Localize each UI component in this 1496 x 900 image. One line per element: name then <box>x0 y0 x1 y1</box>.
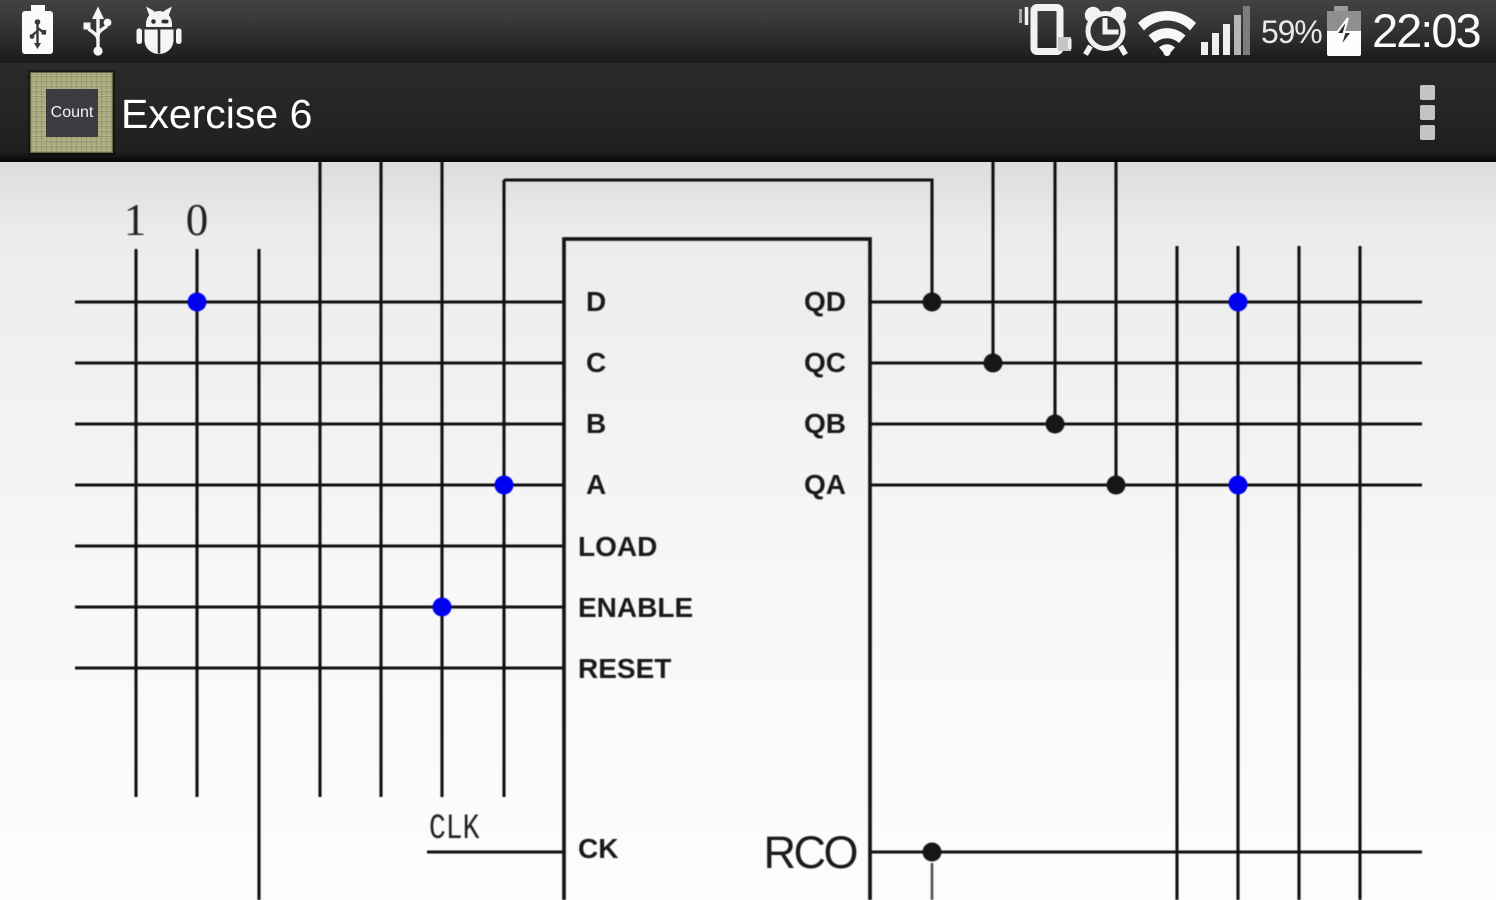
svg-text:1: 1 <box>124 195 147 245</box>
svg-text:CK: CK <box>578 833 618 864</box>
svg-text:A: A <box>586 469 606 500</box>
svg-text:QD: QD <box>804 286 846 317</box>
svg-text:C: C <box>586 347 606 378</box>
svg-text:D: D <box>586 286 606 317</box>
svg-text:QB: QB <box>804 408 846 439</box>
svg-text:B: B <box>586 408 606 439</box>
svg-text:QC: QC <box>804 347 846 378</box>
svg-text:0: 0 <box>186 195 209 245</box>
svg-text:RESET: RESET <box>578 653 671 684</box>
svg-text:CLK: CLK <box>429 808 480 849</box>
svg-text:QA: QA <box>804 469 846 500</box>
svg-text:RCO: RCO <box>764 827 857 878</box>
svg-text:LOAD: LOAD <box>578 531 657 562</box>
svg-text:ENABLE: ENABLE <box>578 592 693 623</box>
